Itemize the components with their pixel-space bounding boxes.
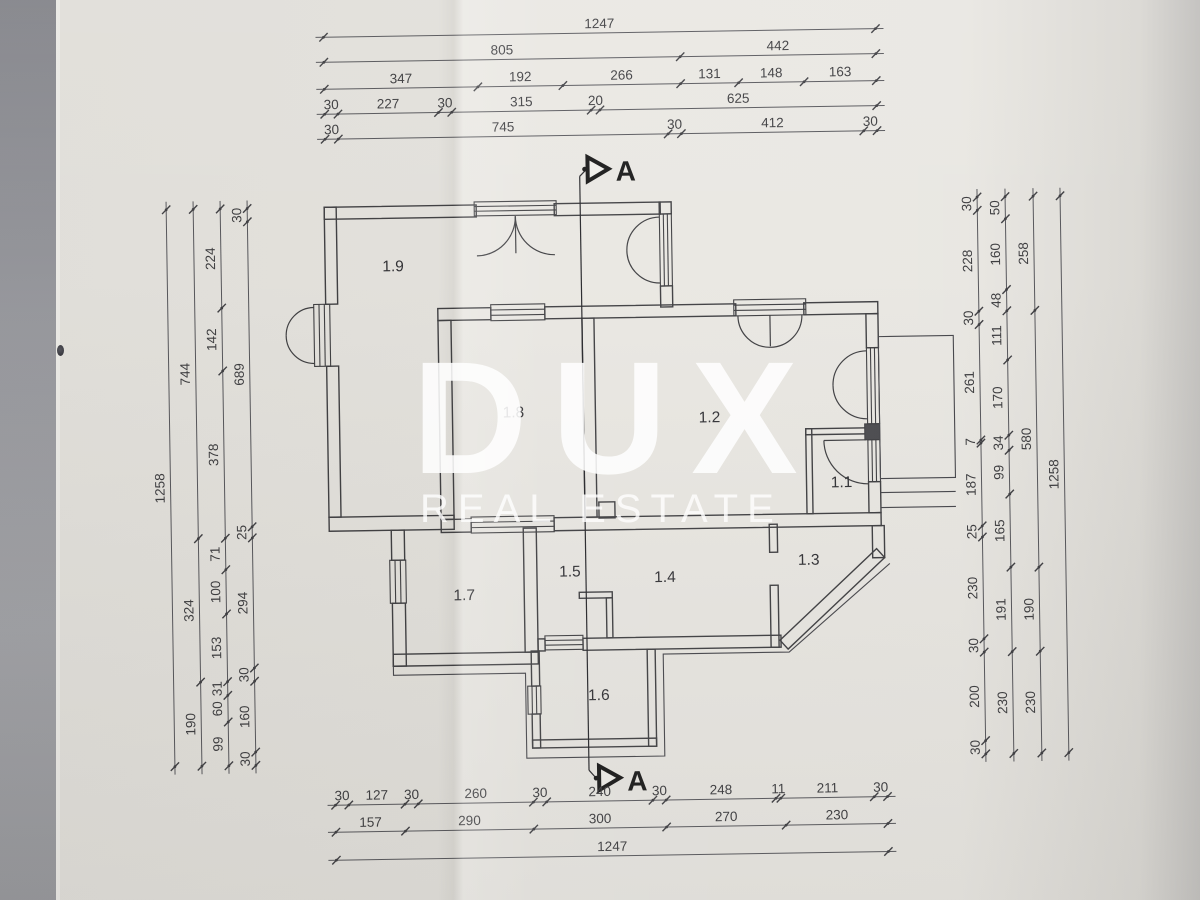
dim-chain-bottom-1: 157290300270230 [328, 806, 896, 836]
dim-label: 30 [532, 785, 547, 800]
dim-label: 30 [966, 638, 981, 653]
dim-label: 258 [1016, 242, 1031, 265]
dim-label: 148 [760, 65, 783, 80]
dim-chain-top-4: 307453041230 [317, 113, 885, 143]
section-marker-top: A [582, 155, 636, 187]
section-label: A [627, 765, 648, 796]
dim-label: 165 [992, 519, 1007, 542]
dim-label: 190 [183, 713, 198, 736]
dim-chain-top-0: 1247 [315, 11, 883, 41]
dim-label: 240 [588, 784, 611, 799]
dim-label: 157 [359, 814, 382, 829]
dim-label: 294 [235, 591, 250, 614]
dim-chain-top-3: 302273031520625 [316, 88, 884, 118]
dim-chain-right-2: 258580190230 [1015, 188, 1046, 761]
dim-label: 30 [863, 114, 878, 129]
dim-label: 20 [588, 93, 603, 108]
dim-label: 248 [710, 782, 733, 797]
dim-label: 260 [464, 786, 487, 801]
dim-label: 192 [509, 69, 532, 84]
dim-label: 100 [208, 581, 223, 604]
dim-label: 99 [991, 465, 1006, 480]
dim-label: 30 [229, 208, 244, 223]
dim-label: 127 [365, 787, 388, 802]
dim-label: 187 [963, 473, 978, 496]
dim-label: 142 [204, 328, 219, 351]
dim-label: 228 [960, 250, 975, 273]
dim-label: 200 [967, 685, 982, 708]
dim-label: 211 [817, 780, 839, 795]
dim-label: 30 [238, 751, 253, 766]
dim-label: 261 [962, 371, 977, 394]
dim-label: 30 [968, 740, 983, 755]
dim-label: 163 [829, 64, 852, 79]
dim-label: 31 [210, 681, 225, 696]
dim-chain-top-1: 805442 [316, 36, 884, 66]
dim-label: 230 [1023, 691, 1038, 714]
dim-label: 153 [209, 637, 224, 660]
dim-label: 48 [989, 293, 1004, 308]
dim-label: 11 [771, 781, 785, 796]
dim-label: 230 [965, 577, 980, 600]
room-label-1.9: 1.9 [382, 258, 404, 275]
dim-label: 689 [232, 363, 247, 386]
dim-label: 1247 [584, 16, 614, 31]
dim-label: 30 [437, 95, 452, 110]
dim-label: 99 [210, 736, 225, 751]
walls [324, 199, 887, 752]
section-label: A [615, 155, 636, 186]
dim-label: 744 [178, 362, 193, 385]
dim-label: 625 [727, 91, 750, 106]
dim-label: 25 [234, 525, 249, 540]
dim-label: 160 [988, 243, 1003, 266]
room-label-1.1: 1.1 [831, 474, 853, 491]
photographed-floor-plan: A A 124780544234719226613114816330227303… [0, 0, 1200, 900]
dim-chain-right-0: 30228302617187252303020030 [959, 189, 990, 762]
dim-label: 1247 [597, 839, 627, 854]
dim-label: 111 [989, 325, 1004, 346]
dim-label: 71 [207, 547, 222, 562]
dim-label: 30 [959, 196, 974, 211]
dim-label: 300 [589, 811, 612, 826]
dim-label: 1258 [1046, 459, 1061, 489]
dim-chain-left-1: 744324190 [175, 201, 206, 774]
dim-label: 270 [715, 809, 738, 824]
dim-label: 60 [210, 701, 225, 716]
staple-dot [57, 345, 64, 356]
dim-label: 34 [991, 435, 1006, 451]
dim-label: 324 [181, 599, 196, 622]
dim-label: 50 [987, 200, 1002, 215]
dim-label: 30 [324, 97, 339, 112]
dim-label: 25 [964, 524, 979, 539]
room-label-1.7: 1.7 [453, 587, 475, 604]
dim-label: 347 [390, 71, 413, 86]
room-label-1.3: 1.3 [798, 552, 820, 569]
dim-label: 30 [236, 667, 251, 682]
room-label-1.2: 1.2 [699, 409, 721, 426]
dim-label: 580 [1019, 428, 1034, 451]
dim-chain-right-3: 1258 [1042, 188, 1073, 761]
dim-label: 30 [873, 780, 888, 795]
room-label-1.4: 1.4 [654, 569, 676, 586]
dim-label: 30 [961, 310, 976, 325]
dim-label: 442 [766, 38, 789, 53]
dim-chain-left-0: 1258 [148, 202, 179, 775]
dim-label: 290 [458, 813, 481, 828]
terrace-outline [878, 335, 956, 507]
dim-label: 805 [491, 42, 514, 57]
dim-label: 315 [510, 94, 533, 109]
dim-label: 412 [761, 115, 784, 130]
dim-label: 30 [652, 783, 667, 798]
dim-label: 30 [404, 787, 419, 802]
dim-label: 131 [698, 66, 721, 81]
wall-pier [865, 424, 880, 440]
dim-label: 191 [993, 598, 1008, 621]
dim-label: 378 [206, 443, 221, 466]
dim-label: 224 [203, 247, 218, 270]
dim-label: 1258 [152, 473, 167, 503]
dim-label: 160 [237, 705, 252, 728]
dim-chain-top-2: 347192266131148163 [316, 63, 884, 93]
dim-label: 7 [963, 438, 978, 446]
dim-label: 266 [610, 67, 633, 82]
dim-label: 30 [667, 117, 682, 132]
dim-label: 190 [1021, 598, 1036, 621]
room-label-1.6: 1.6 [588, 687, 610, 704]
dim-label: 170 [990, 386, 1005, 409]
dim-chain-left-2: 22414237871100153316099 [202, 201, 233, 774]
dim-label: 230 [995, 691, 1010, 714]
floor-plan-drawing: A A 124780544234719226613114816330227303… [0, 0, 1200, 900]
dim-label: 30 [334, 788, 349, 803]
room-label-1.5: 1.5 [559, 563, 581, 580]
dim-label: 30 [324, 122, 339, 137]
dim-label: 230 [826, 807, 849, 822]
dim-label: 227 [377, 96, 400, 111]
room-label-1.8: 1.8 [502, 404, 524, 421]
door-swings [284, 211, 868, 493]
dim-chain-left-3: 30689252943016030 [229, 200, 260, 773]
dim-label: 745 [492, 119, 515, 134]
dim-chain-bottom-2: 1247 [328, 834, 896, 864]
dim-chain-right-1: 50160481111703499165191230 [987, 189, 1018, 762]
